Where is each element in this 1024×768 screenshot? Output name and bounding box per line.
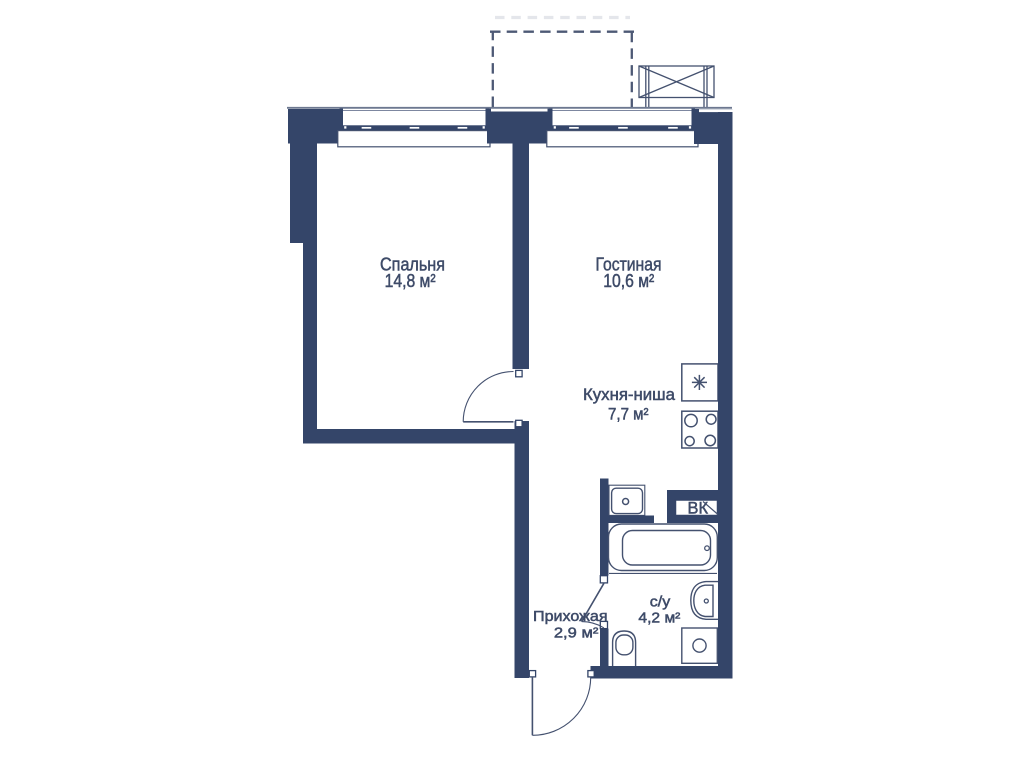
svg-text:Кухня-ниша: Кухня-ниша (583, 386, 676, 404)
svg-text:Прихожая: Прихожая (533, 609, 608, 625)
svg-text:с/у: с/у (650, 594, 671, 610)
svg-text:4,2 м²: 4,2 м² (638, 611, 680, 627)
svg-text:7,7 м²: 7,7 м² (608, 406, 649, 424)
svg-text:ВК: ВК (688, 499, 709, 518)
svg-text:2,9 м²: 2,9 м² (554, 626, 599, 642)
svg-text:14,8 м²: 14,8 м² (385, 270, 436, 291)
svg-text:10,6 м²: 10,6 м² (603, 270, 654, 291)
